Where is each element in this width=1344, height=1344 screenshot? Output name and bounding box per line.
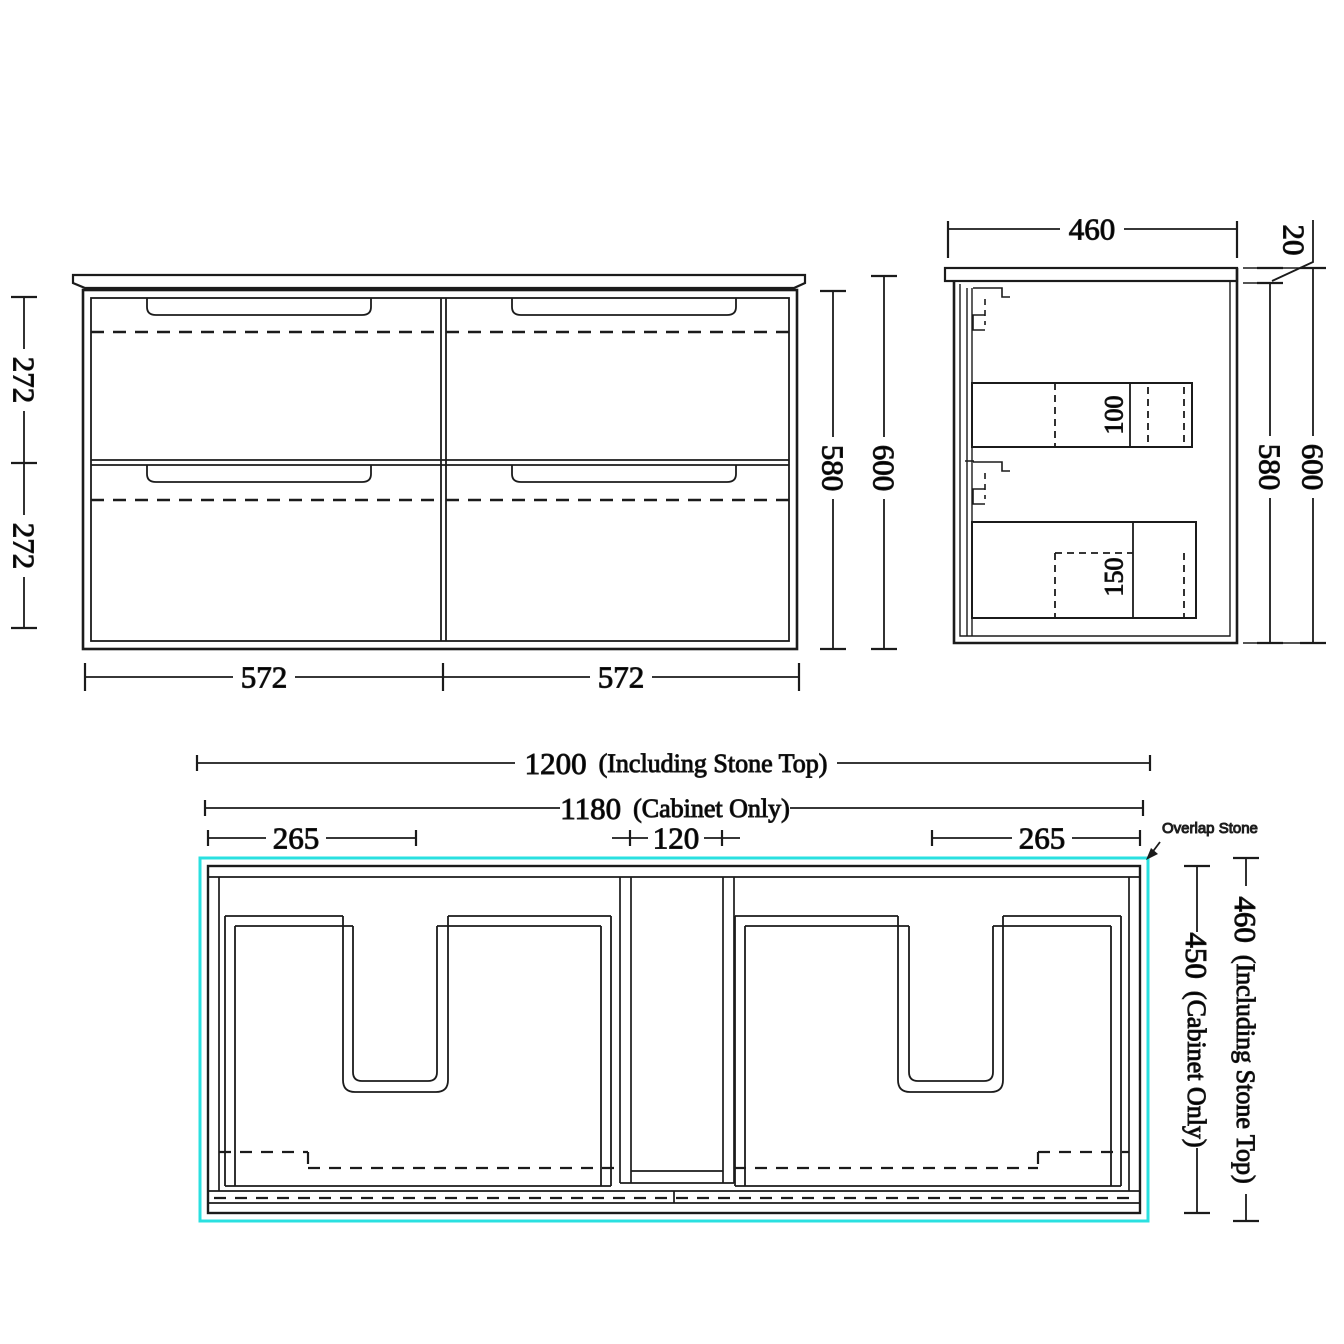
wall-bracket-details — [973, 288, 1010, 504]
dim-plan-overall-depth-value: 460 — [1229, 896, 1264, 943]
left-drawer-walls — [225, 916, 611, 1186]
front-dim-ticks — [11, 276, 897, 691]
plan-dim-ticks — [197, 755, 1259, 1221]
dim-plan-cabinet-depth: 450 (Cabinet Only) — [1180, 932, 1215, 1147]
plan-view: 1200 (Including Stone Top) 1180 (Cabinet… — [197, 746, 1264, 1222]
front-view: 272 272 580 600 572 572 — [7, 275, 902, 695]
lower-drawer-side-box — [972, 522, 1196, 618]
dim-plan-overall-width: 1200 (Including Stone Top) — [525, 746, 828, 781]
dim-plan-cabinet-depth-value: 450 — [1180, 932, 1215, 979]
overlap-stone-arrowhead — [1146, 848, 1158, 860]
dim-plan-left-offset: 265 — [273, 821, 320, 856]
cabinet-inner-frame — [91, 298, 789, 641]
drawer-dividers — [91, 298, 789, 641]
cabinet-inner-lines-side — [960, 281, 1230, 636]
vanity-technical-drawing: 272 272 580 600 572 572 460 20 580 600 1… — [0, 0, 1344, 1344]
dim-plan-overall-depth-note: (Including Stone Top) — [1232, 955, 1261, 1184]
cabinet-outline-side — [954, 268, 1237, 643]
right-drawer-walls — [735, 916, 1121, 1186]
front-dim-lines — [24, 276, 884, 677]
left-drawer-u-cutout — [343, 916, 448, 1092]
drawing-svg: 272 272 580 600 572 572 460 20 580 600 1… — [0, 0, 1344, 1344]
upper-drawer-side-box — [972, 383, 1192, 447]
drawer-box-partitions — [1130, 383, 1133, 618]
dim-side-cabinet-height: 580 — [1253, 444, 1288, 491]
dim-front-cabinet-height: 580 — [816, 445, 851, 492]
dim-plan-cabinet-depth-note: (Cabinet Only) — [1183, 991, 1212, 1148]
dim-side-stone-thickness: 20 — [1277, 225, 1312, 256]
dim-front-drawer-height-top: 272 — [7, 357, 42, 404]
dim-plan-cabinet-width-note: (Cabinet Only) — [633, 794, 790, 823]
dim-upper-drawer: 100 — [1100, 396, 1129, 435]
right-drawer-u-cutout — [898, 916, 1003, 1092]
cabinet-outline-plan — [208, 866, 1140, 1213]
drawer-box-hidden-lines — [91, 332, 789, 500]
dim-front-drawer-height-bottom: 272 — [7, 523, 42, 570]
dim-front-overall-height: 600 — [867, 445, 902, 492]
side-view: 460 20 580 600 100 150 — [945, 212, 1331, 644]
stone-top-front — [73, 275, 805, 288]
dim-lower-drawer: 150 — [1100, 558, 1129, 597]
dim-front-drawer-width-right: 572 — [598, 660, 645, 695]
dim-plan-overall-width-value: 1200 — [525, 746, 587, 781]
dim-plan-center-gap: 120 — [653, 821, 700, 856]
stone-top-side — [945, 268, 1237, 281]
dim-side-overall-height: 600 — [1296, 444, 1331, 491]
dim-plan-right-offset: 265 — [1019, 821, 1066, 856]
overlap-stone-label: Overlap Stone — [1162, 820, 1258, 837]
dim-side-depth: 460 — [1069, 212, 1116, 247]
dim-front-drawer-width-left: 572 — [241, 660, 288, 695]
dim-plan-cabinet-width-value: 1180 — [560, 791, 621, 826]
cabinet-outline-front — [83, 290, 797, 649]
dim-plan-overall-depth: 460 (Including Stone Top) — [1229, 896, 1264, 1183]
dim-plan-overall-width-note: (Including Stone Top) — [599, 749, 828, 778]
